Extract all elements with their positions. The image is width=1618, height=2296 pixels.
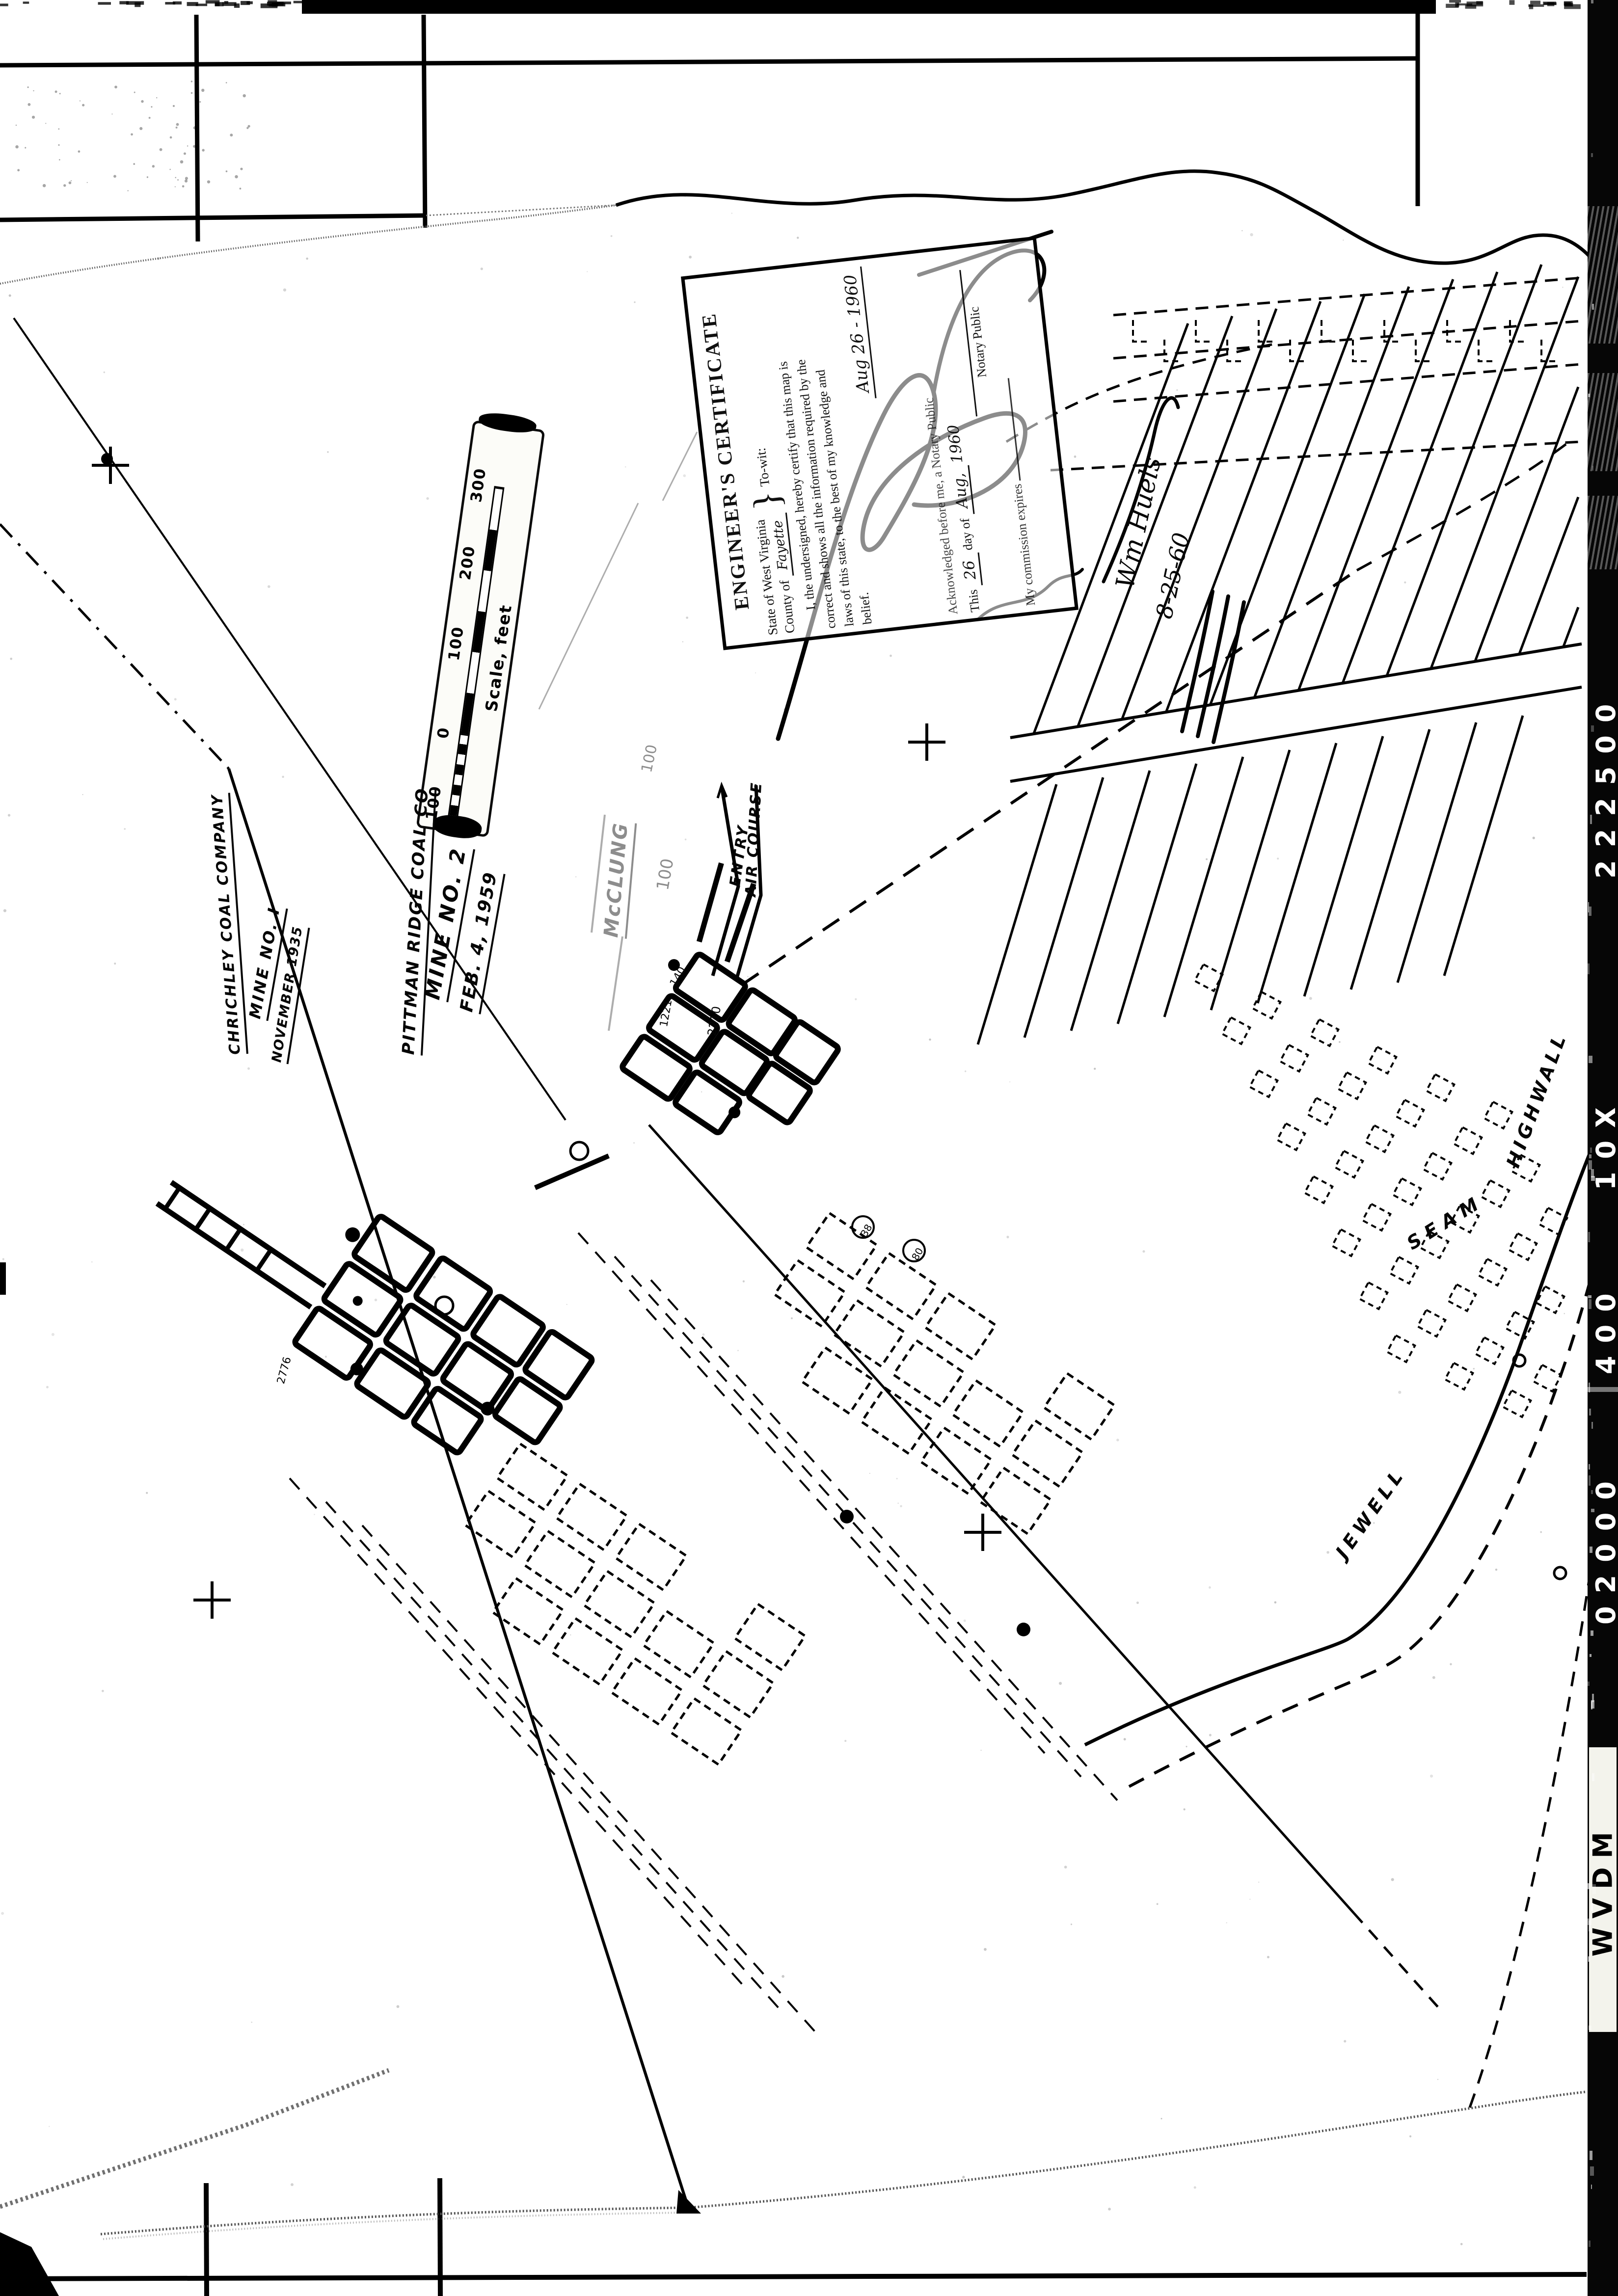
certificate-text-block: ENGINEER'S CERTIFICATE State of West Vir… bbox=[689, 247, 1067, 640]
day-mid: day of bbox=[957, 517, 975, 551]
mine-no2-workings bbox=[595, 862, 889, 1163]
faint-pencil-strokes bbox=[539, 432, 697, 1031]
year-value-handwritten: 1960 bbox=[944, 424, 966, 464]
film-noise-patch bbox=[1588, 496, 1618, 569]
brace-glyph: } bbox=[751, 490, 783, 511]
top-ink-bar bbox=[302, 0, 1436, 14]
microfilm-edge-strip: 222500 10X 400 02000 WVDM bbox=[1588, 0, 1618, 2296]
commission-blank-line bbox=[998, 378, 1021, 481]
film-scratch bbox=[1588, 1387, 1618, 1392]
day-value-handwritten: 26 bbox=[959, 552, 982, 587]
engineers-certificate-box: ENGINEER'S CERTIFICATE State of West Vir… bbox=[681, 236, 1079, 650]
film-noise-patch bbox=[1588, 206, 1618, 344]
scanner-corner-blob bbox=[0, 2232, 59, 2296]
mine-no1-workings bbox=[135, 1108, 593, 1487]
scale-tick-200: 200 bbox=[457, 544, 479, 581]
scale-tick-0: 0 bbox=[434, 726, 453, 740]
month-value-handwritten: Aug, bbox=[949, 465, 974, 516]
scanned-mine-map-sheet: ENGINEER'S CERTIFICATE State of West Vir… bbox=[0, 0, 1618, 2296]
film-code-222500: 222500 bbox=[1591, 692, 1618, 879]
film-code-400: 400 bbox=[1591, 1281, 1618, 1374]
commission-label: My commission expires bbox=[1010, 483, 1038, 607]
day-prefix: This bbox=[966, 589, 982, 613]
scale-tick-100: 100 bbox=[445, 625, 467, 662]
towit-label: To-wit: bbox=[753, 447, 773, 487]
film-code-02000: 02000 bbox=[1591, 1468, 1618, 1625]
film-noise-patch bbox=[1588, 373, 1618, 471]
scale-tick-300: 300 bbox=[467, 467, 489, 504]
scale-bar-tail bbox=[448, 732, 470, 818]
